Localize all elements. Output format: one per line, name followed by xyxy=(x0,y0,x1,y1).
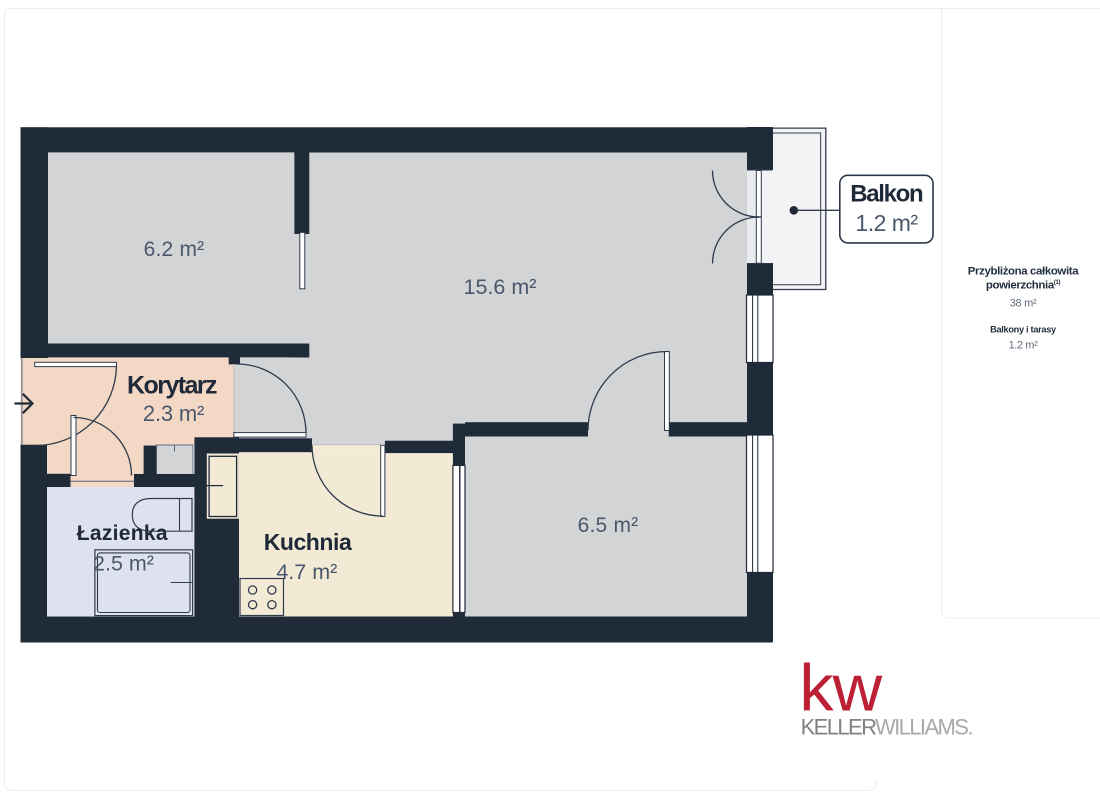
svg-text:Przybliżona całkowita: Przybliżona całkowita xyxy=(968,265,1079,277)
svg-text:Korytarz: Korytarz xyxy=(127,372,217,400)
svg-text:15.6 m²: 15.6 m² xyxy=(464,275,537,299)
svg-text:powierzchnia(1): powierzchnia(1) xyxy=(986,279,1061,291)
svg-text:1.2 m²: 1.2 m² xyxy=(1009,340,1039,352)
svg-text:Łazienka: Łazienka xyxy=(77,522,168,545)
svg-text:Balkon: Balkon xyxy=(850,181,923,208)
svg-text:Kuchnia: Kuchnia xyxy=(264,529,352,555)
svg-text:2.3 m²: 2.3 m² xyxy=(143,401,204,426)
svg-text:6.2 m²: 6.2 m² xyxy=(144,238,205,261)
svg-text:KELLERWILLIAMS.: KELLERWILLIAMS. xyxy=(801,715,973,740)
svg-text:6.5 m²: 6.5 m² xyxy=(578,514,639,537)
svg-text:2.5 m²: 2.5 m² xyxy=(93,551,154,575)
svg-text:38 m²: 38 m² xyxy=(1010,298,1037,310)
svg-text:4.7 m²: 4.7 m² xyxy=(276,560,337,584)
svg-text:1.2 m²: 1.2 m² xyxy=(855,210,918,236)
svg-text:Balkony i tarasy: Balkony i tarasy xyxy=(990,324,1057,334)
